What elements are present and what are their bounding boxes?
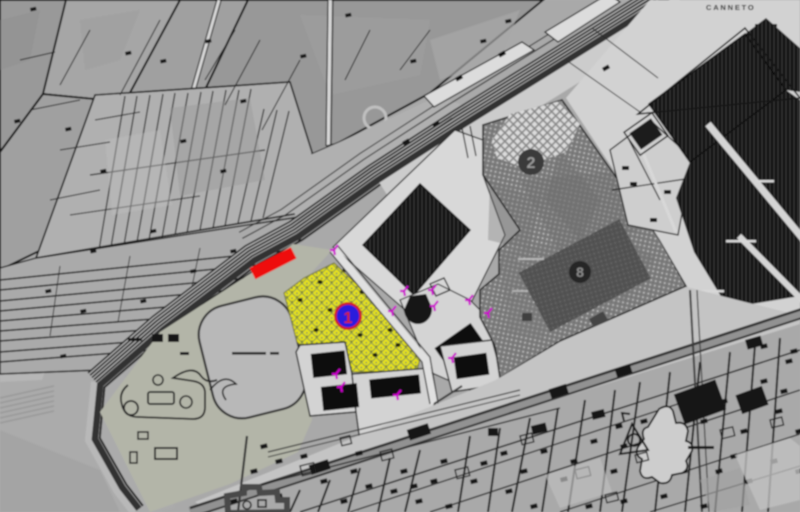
svg-text:2: 2	[527, 155, 536, 172]
svg-text:1: 1	[344, 310, 353, 327]
svg-text:CANNETO: CANNETO	[706, 3, 756, 12]
svg-text:8: 8	[576, 264, 584, 280]
